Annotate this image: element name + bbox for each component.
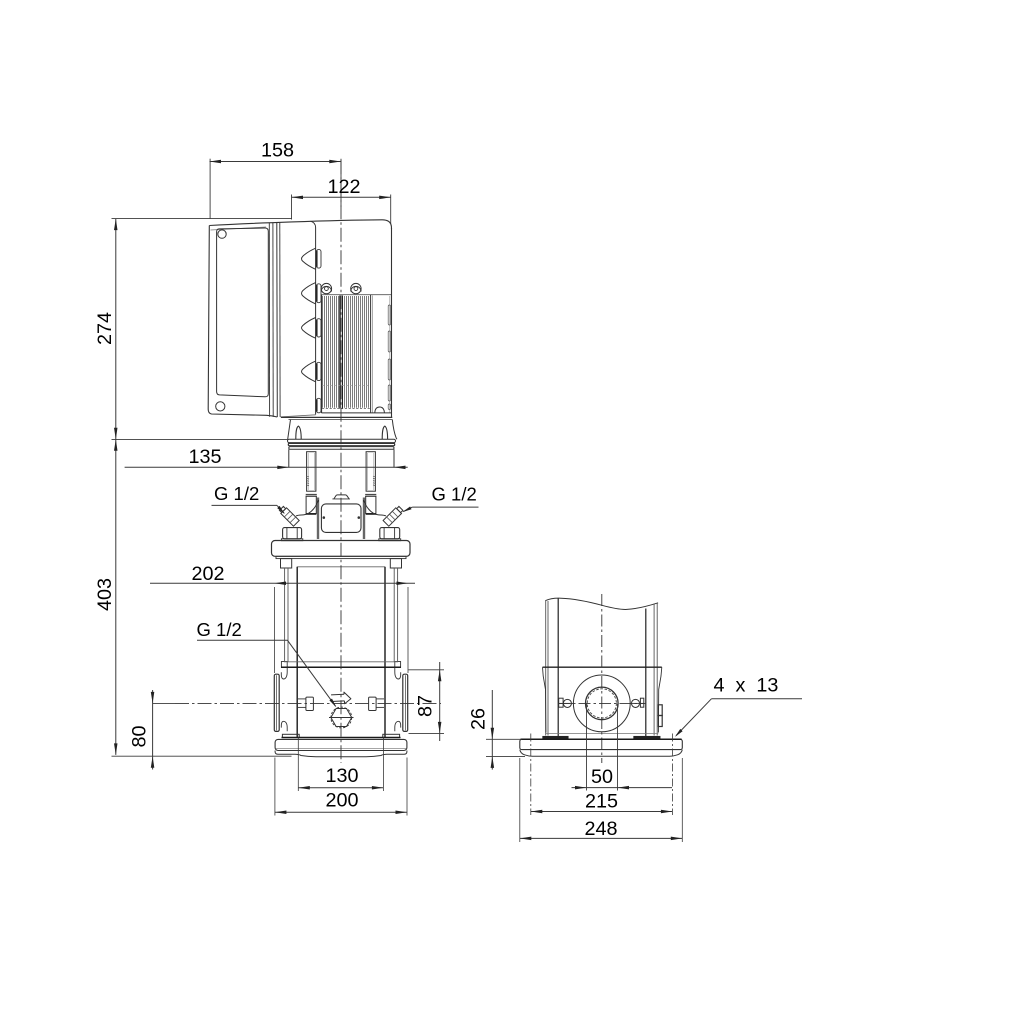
svg-text:135: 135	[188, 446, 221, 468]
svg-text:G 1/2: G 1/2	[214, 483, 259, 504]
svg-text:158: 158	[261, 140, 294, 162]
svg-text:87: 87	[415, 695, 437, 717]
svg-text:G 1/2: G 1/2	[197, 619, 242, 640]
svg-text:202: 202	[191, 563, 224, 585]
svg-text:200: 200	[325, 790, 358, 812]
svg-text:130: 130	[325, 765, 358, 787]
svg-text:G 1/2: G 1/2	[432, 483, 477, 504]
svg-text:50: 50	[591, 766, 613, 788]
svg-text:215: 215	[585, 791, 618, 813]
svg-text:248: 248	[584, 818, 617, 840]
svg-text:274: 274	[94, 312, 116, 345]
svg-text:4 x 13: 4 x 13	[714, 675, 779, 697]
svg-text:80: 80	[129, 725, 151, 747]
svg-text:122: 122	[327, 176, 360, 198]
svg-text:26: 26	[468, 708, 490, 730]
svg-text:403: 403	[94, 578, 116, 611]
